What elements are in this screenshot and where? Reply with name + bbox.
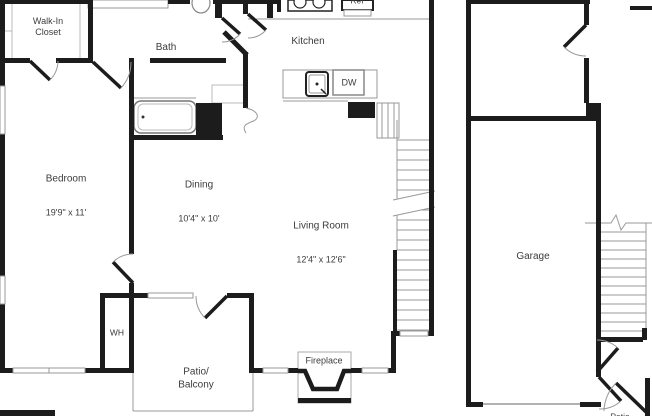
stair-winder-treads: [382, 103, 394, 138]
room-label-kitchen: Kitchen: [291, 36, 324, 49]
label-water-heater: WH: [110, 328, 124, 339]
room-label-garage: Garage: [516, 251, 549, 264]
stove-icon: [288, 0, 332, 11]
room-label-bedroom: Bedroom 19'9" x 11': [46, 154, 87, 239]
room-name: Bedroom: [46, 174, 87, 187]
room-name: Living Room: [293, 221, 349, 234]
staircase-main: [377, 103, 435, 330]
room-dimensions: 19'9" x 11': [46, 207, 87, 218]
room-label-living-room: Living Room 12'4" x 12'6": [293, 201, 349, 286]
stair-treads: [397, 140, 433, 330]
room-label-dining: Dining 10'4" x 10': [178, 160, 219, 245]
window-stairwell: [400, 331, 428, 336]
room-label-patio-balcony: Patio/ Balcony: [178, 367, 214, 392]
room-label-bath: Bath: [156, 42, 177, 55]
bath-shower-stall: [212, 85, 245, 103]
label-dishwasher: DW: [342, 77, 357, 88]
bathtub-icon: [134, 98, 196, 133]
staircase-exterior: [585, 215, 652, 337]
window-living-south-1: [263, 368, 288, 373]
angled-wall: [224, 32, 247, 55]
bath-vanity: [88, 0, 168, 8]
stair-landing-break: [585, 215, 652, 230]
stair-break: [393, 191, 435, 216]
label-refrigerator: Ref: [350, 0, 363, 6]
toilet-icon: [192, 0, 210, 13]
window-bedroom-left-upper: [0, 86, 5, 134]
room-name: Dining: [178, 180, 219, 193]
kitchen-sink-icon: [306, 72, 328, 96]
room-label-patio-lower: Patio: [610, 412, 629, 416]
label-fireplace: Fireplace: [305, 355, 342, 366]
room-label-walk-in-closet: Walk-In Closet: [33, 16, 63, 39]
room-dimensions: 10'4" x 10': [178, 213, 219, 224]
window-bedroom-left-lower: [0, 276, 5, 304]
window-patio-wall: [148, 293, 193, 298]
cased-opening-symbol: [244, 108, 257, 133]
room-dimensions: 12'4" x 12'6": [293, 254, 349, 265]
stair-treads-exterior: [601, 232, 646, 331]
window-living-south-2: [362, 368, 388, 373]
floor-plan: Walk-In Closet Bath Kitchen Ref DW Bedro…: [0, 0, 652, 416]
